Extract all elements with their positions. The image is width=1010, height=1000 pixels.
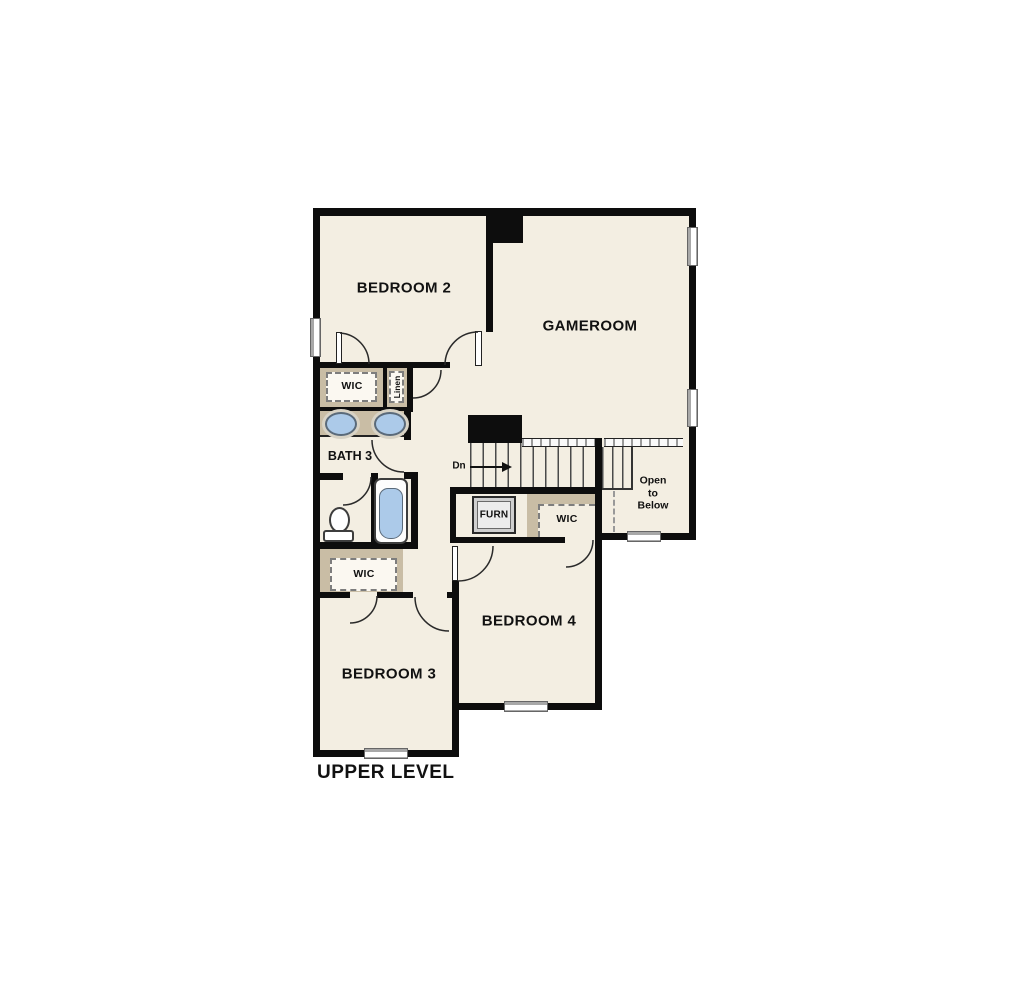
stair-railing-right [604, 438, 683, 447]
window-bedroom3-bottom [364, 748, 408, 759]
wall-linen-right [407, 368, 413, 412]
sink-right [374, 412, 406, 436]
window-gameroom-right-top [687, 227, 698, 266]
plan-title: UPPER LEVEL [317, 762, 454, 784]
wall-wic3-bottom-right [377, 592, 413, 598]
sink-left [325, 412, 357, 436]
room-label-bedroom3: BEDROOM 3 [342, 666, 436, 683]
room-label-bedroom4: BEDROOM 4 [482, 613, 576, 630]
window-gameroom-right-mid [687, 389, 698, 427]
wall-outer-left [313, 208, 320, 757]
door-leaf-gameroom [475, 331, 482, 366]
closet-label-wic-bath: WIC [341, 380, 362, 392]
wall-bed3-bed4-divider [452, 581, 459, 757]
wall-bed2-bottom [313, 362, 450, 368]
window-bedroom2-left [310, 318, 321, 357]
open-to-below-line2: to [638, 487, 669, 500]
wall-toilet-room-top [313, 473, 343, 480]
door-leaf-bedroom4 [452, 546, 458, 581]
toilet-tank [323, 530, 354, 542]
wall-stair-bottom [450, 487, 600, 494]
wall-wic4-bottom [527, 537, 565, 543]
stair-head-block [468, 415, 522, 443]
wall-bed3-top-jamb [447, 592, 459, 598]
window-bedroom4-bottom [504, 701, 548, 712]
wall-chase-block [489, 208, 523, 243]
stair-open-edge-dashed [613, 491, 617, 532]
wall-vanity-top [313, 407, 407, 411]
room-label-bedroom2: BEDROOM 2 [357, 280, 451, 297]
stair-railing-left [522, 438, 595, 447]
stair-down-arrowhead [502, 462, 512, 472]
floor-plan: BEDROOM 2 GAMEROOM BATH 3 BEDROOM 4 BEDR… [0, 0, 1010, 1000]
wall-furn-left [450, 494, 456, 543]
room-label-bath3: BATH 3 [328, 449, 372, 463]
open-to-below-line1: Open [638, 474, 669, 487]
wall-wic-linen-divider [383, 368, 387, 407]
wall-bed4-top [450, 537, 530, 543]
wall-bed4-right [595, 438, 602, 710]
stair-turn-treads [602, 447, 633, 490]
wall-wic3-bottom-left [313, 592, 350, 598]
room-label-gameroom: GAMEROOM [543, 318, 638, 335]
bathtub-basin [379, 488, 403, 539]
stair-treads [470, 443, 595, 487]
furnace-label: FURN [480, 510, 509, 521]
wall-bath-hall-lower [411, 472, 418, 549]
closet-label-wic-bed4: WIC [556, 513, 577, 525]
stair-down-label: Dn [452, 461, 465, 472]
open-to-below-line3: Below [638, 499, 669, 512]
closet-label-linen: Linen [392, 376, 402, 399]
closet-label-wic-bed3: WIC [353, 568, 374, 580]
stair-down-arrow [470, 466, 503, 468]
open-to-below-label: Open to Below [638, 474, 669, 512]
door-leaf-bed2-closet [336, 332, 342, 364]
window-openbelow-bottom [627, 531, 661, 542]
